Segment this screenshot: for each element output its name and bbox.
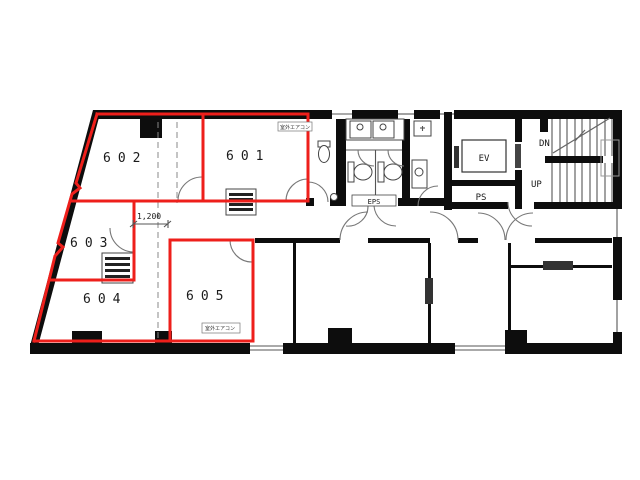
floor-plan-page: 1,200 602 601 603 604 605 EV PS EPS DN U… [0, 0, 640, 480]
room-label-603: 603 [70, 236, 114, 251]
toilet-tank [378, 162, 384, 182]
elevator-door [515, 144, 521, 168]
elevator-label: EV [479, 154, 490, 164]
toilet-bowl [354, 164, 372, 180]
toilet-bowl [384, 164, 402, 180]
ac-note-bottom: 室外エアコン [205, 325, 235, 332]
elevator-counterweight [454, 146, 459, 168]
ac-note-top: 室外エアコン [280, 124, 310, 131]
room-label-605: 605 [186, 289, 230, 304]
room-label-604: 604 [83, 292, 127, 307]
faucet-icon [380, 124, 386, 130]
toilet-tank [348, 162, 354, 182]
pipe-shaft-label: PS [476, 193, 487, 203]
stairs-up-label: UP [531, 180, 542, 190]
stairs-down-label: DN [539, 139, 550, 149]
faucet-icon [357, 124, 363, 130]
urinal [319, 146, 330, 163]
sliding-door [425, 278, 433, 304]
janitor-sink-drain [415, 168, 423, 176]
floor-drain [331, 194, 338, 201]
room-label-602: 602 [103, 151, 147, 166]
dimension-label: 1,200 [137, 212, 161, 221]
eps-label: EPS [368, 198, 381, 206]
floor-plan-drawing: 1,200 602 601 603 604 605 EV PS EPS DN U… [0, 0, 640, 480]
room-label-601: 601 [226, 149, 270, 164]
sliding-door [543, 261, 573, 270]
